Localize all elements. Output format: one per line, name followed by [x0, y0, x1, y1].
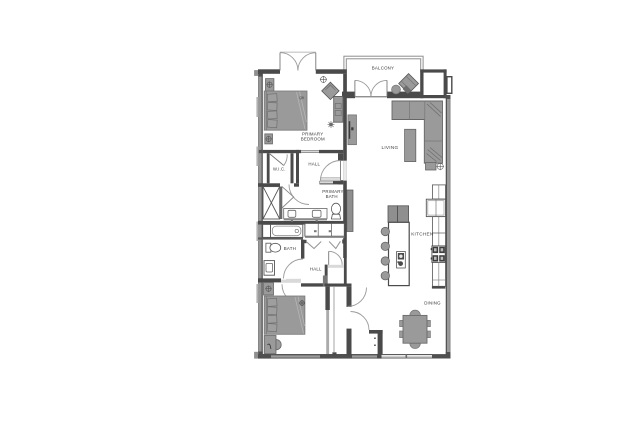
- svg-text:DINING: DINING: [424, 301, 441, 306]
- svg-text:QK: QK: [299, 96, 305, 100]
- svg-text:HALL: HALL: [310, 266, 322, 271]
- svg-text:BATH: BATH: [326, 194, 338, 199]
- svg-text:LIVING: LIVING: [382, 145, 399, 150]
- svg-text:PRIMARY: PRIMARY: [302, 131, 323, 136]
- svg-text:W.I.C.: W.I.C.: [273, 167, 286, 172]
- svg-text:HALL: HALL: [308, 162, 320, 167]
- svg-text:BATH: BATH: [284, 246, 296, 251]
- svg-text:BEDROOM: BEDROOM: [301, 137, 325, 142]
- svg-text:KITCHEN: KITCHEN: [411, 231, 433, 236]
- svg-text:BALCONY: BALCONY: [372, 65, 394, 70]
